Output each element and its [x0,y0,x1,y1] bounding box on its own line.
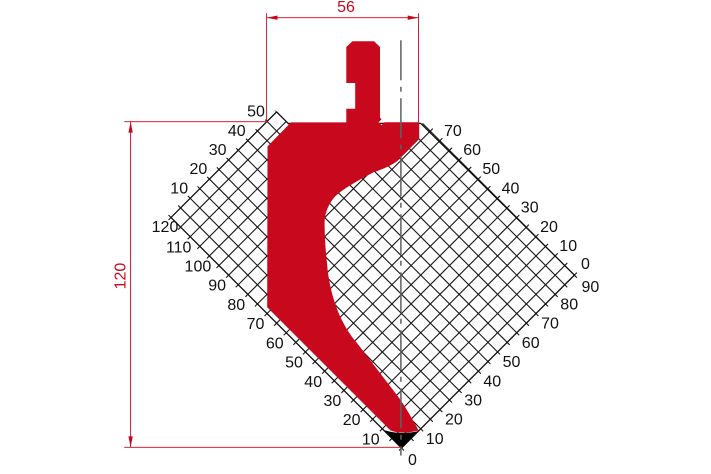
svg-text:20: 20 [190,161,208,178]
svg-text:80: 80 [560,296,578,313]
svg-text:50: 50 [503,354,521,371]
svg-text:20: 20 [445,412,463,429]
svg-text:70: 70 [541,316,559,333]
svg-text:60: 60 [522,335,540,352]
svg-text:0: 0 [408,452,417,469]
svg-text:50: 50 [247,104,265,121]
svg-text:60: 60 [463,142,481,159]
svg-text:90: 90 [582,279,600,296]
svg-text:10: 10 [559,238,577,255]
svg-text:40: 40 [502,180,520,197]
svg-text:30: 30 [464,393,482,410]
svg-text:40: 40 [304,374,322,391]
svg-text:56: 56 [337,0,355,16]
svg-text:90: 90 [208,278,226,295]
svg-text:20: 20 [540,219,558,236]
svg-text:10: 10 [362,431,380,448]
svg-text:70: 70 [444,123,462,140]
svg-text:70: 70 [247,316,265,333]
svg-text:30: 30 [209,142,227,159]
svg-text:110: 110 [166,239,192,256]
svg-text:10: 10 [170,180,188,197]
svg-text:20: 20 [343,412,361,429]
svg-text:120: 120 [152,219,179,236]
svg-text:100: 100 [185,259,212,276]
svg-text:120: 120 [113,263,130,290]
svg-text:40: 40 [228,123,246,140]
svg-text:10: 10 [426,431,444,448]
svg-text:0: 0 [581,256,590,273]
svg-text:80: 80 [227,297,245,314]
svg-text:50: 50 [285,355,303,372]
svg-text:30: 30 [521,200,539,217]
svg-text:60: 60 [266,335,284,352]
svg-text:40: 40 [483,373,501,390]
svg-text:30: 30 [324,393,342,410]
svg-text:50: 50 [482,161,500,178]
